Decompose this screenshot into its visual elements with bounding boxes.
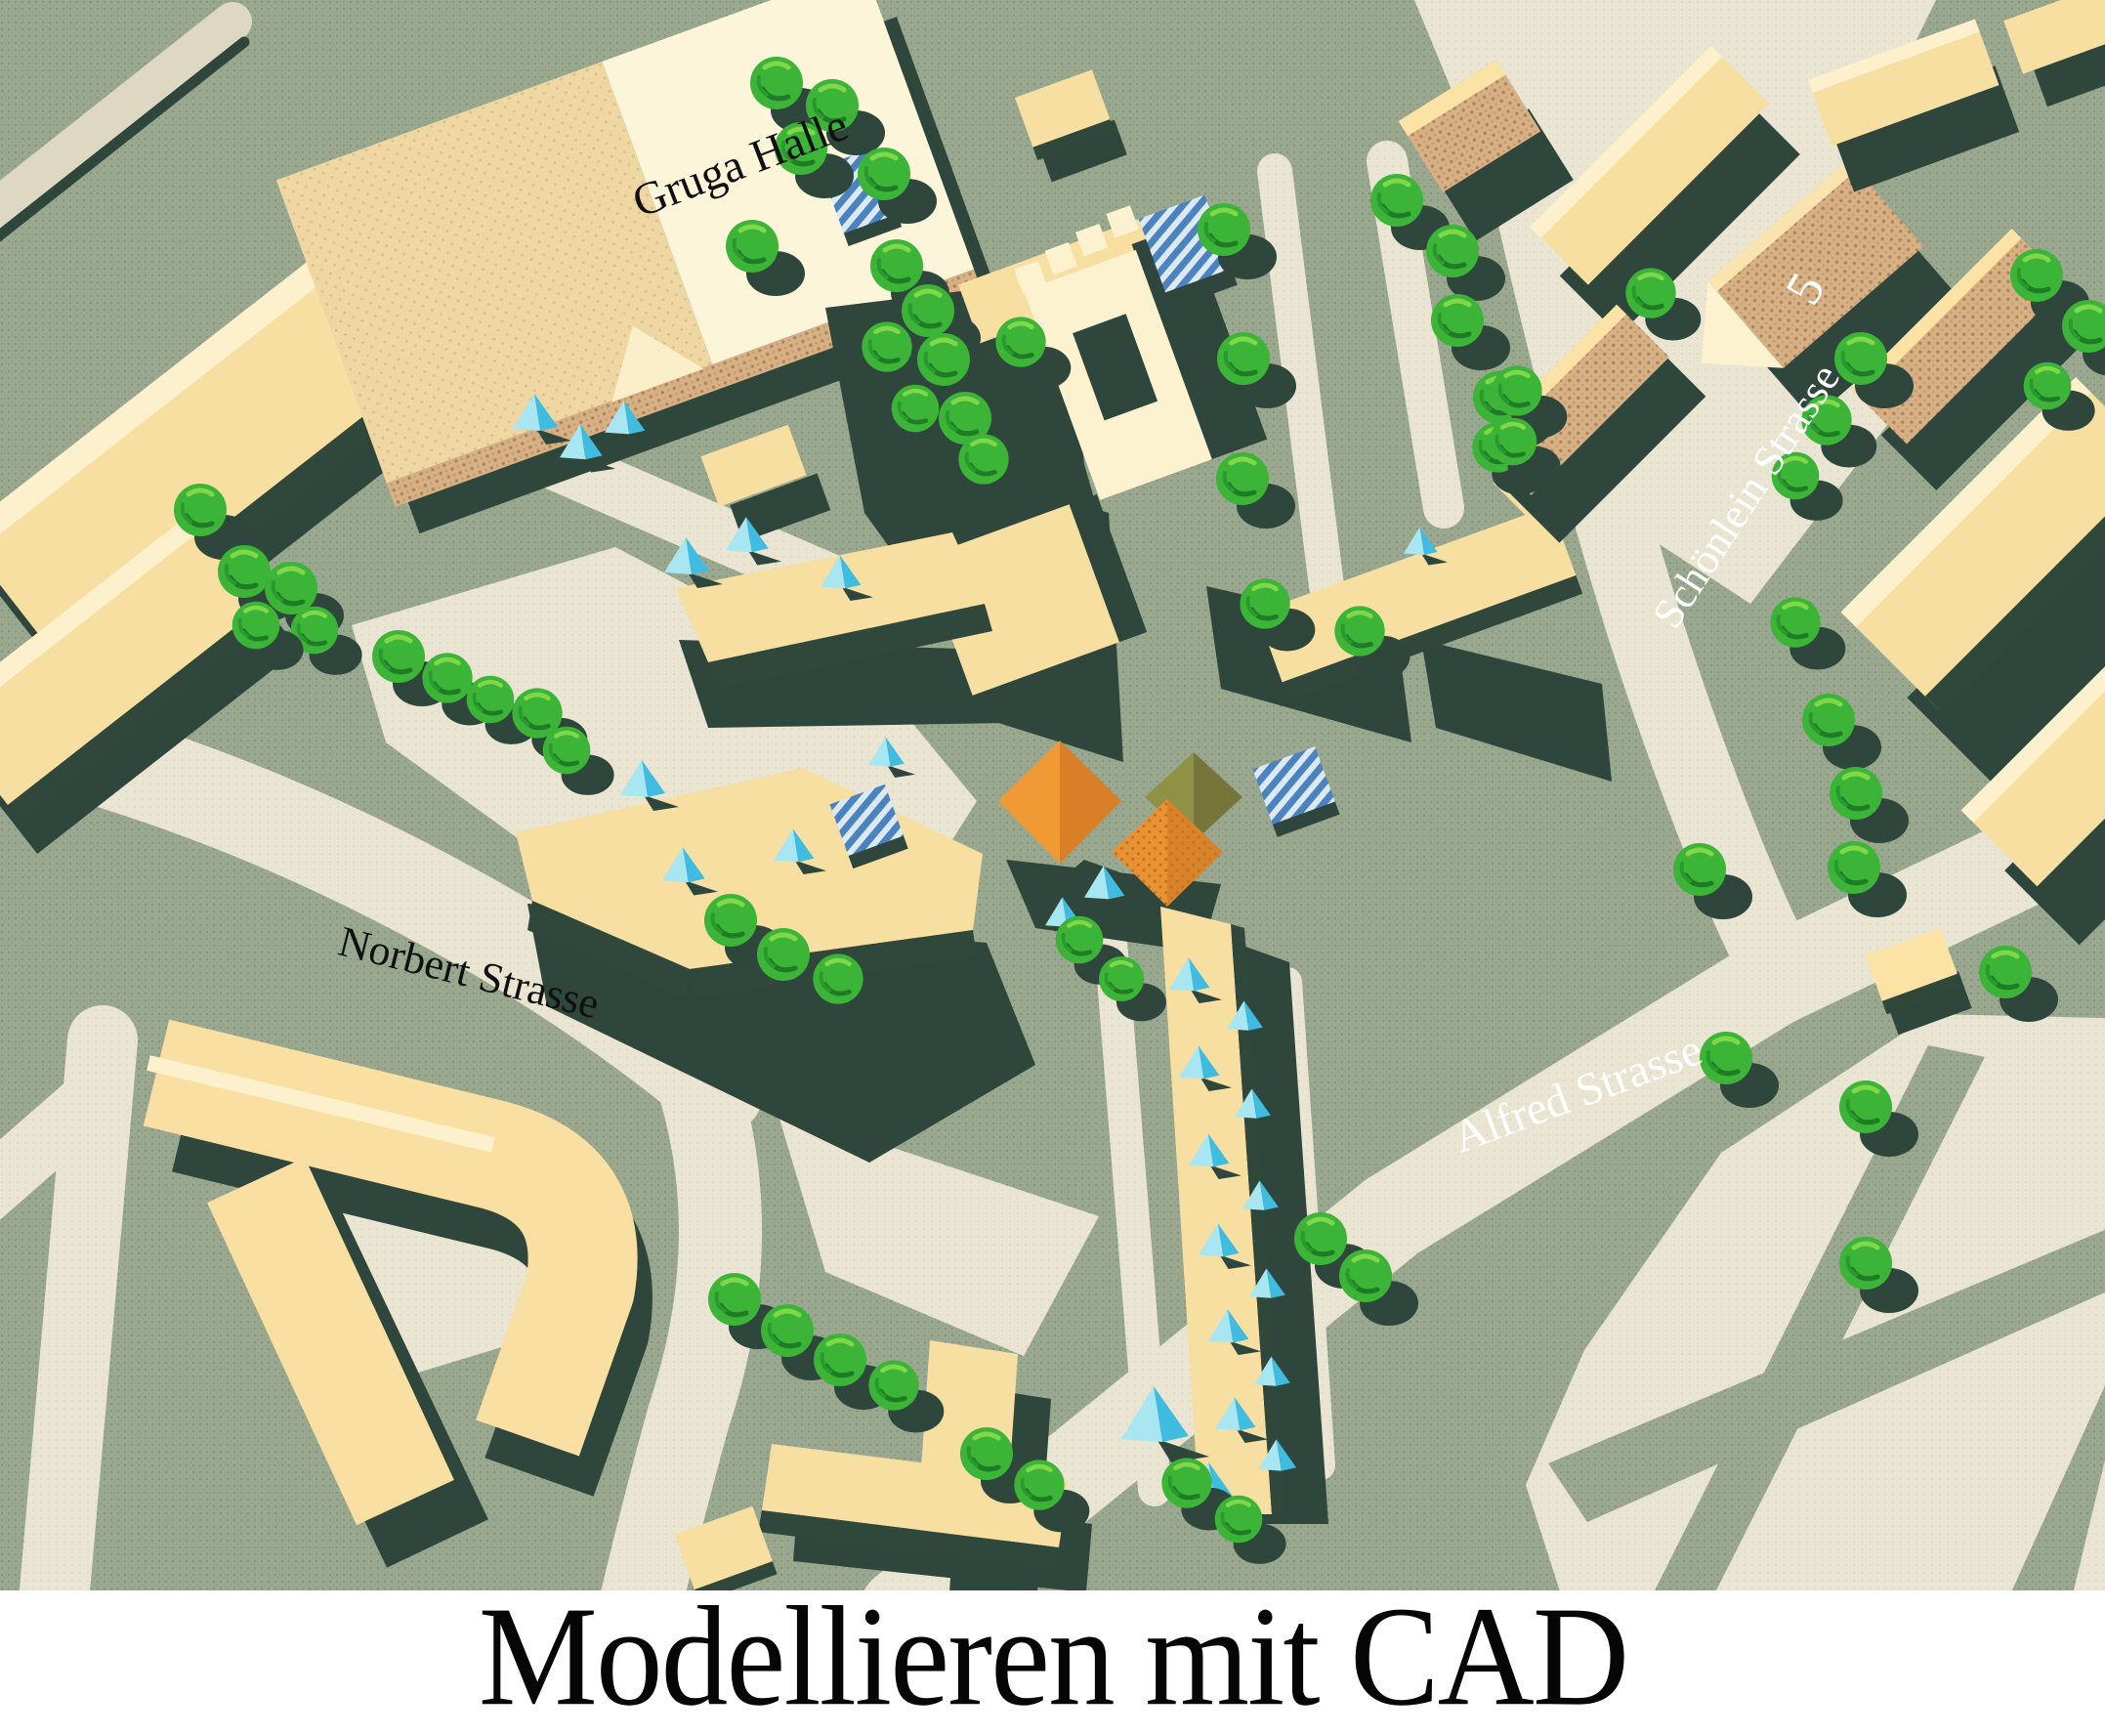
caption-band: Modellieren mit CAD	[0, 1590, 2105, 1736]
city-model-canvas	[0, 0, 2105, 1736]
screenshot-root: Gruga Halle Norbert Strasse Schönlein St…	[0, 0, 2105, 1736]
caption-title: Modellieren mit CAD	[478, 1574, 1626, 1736]
